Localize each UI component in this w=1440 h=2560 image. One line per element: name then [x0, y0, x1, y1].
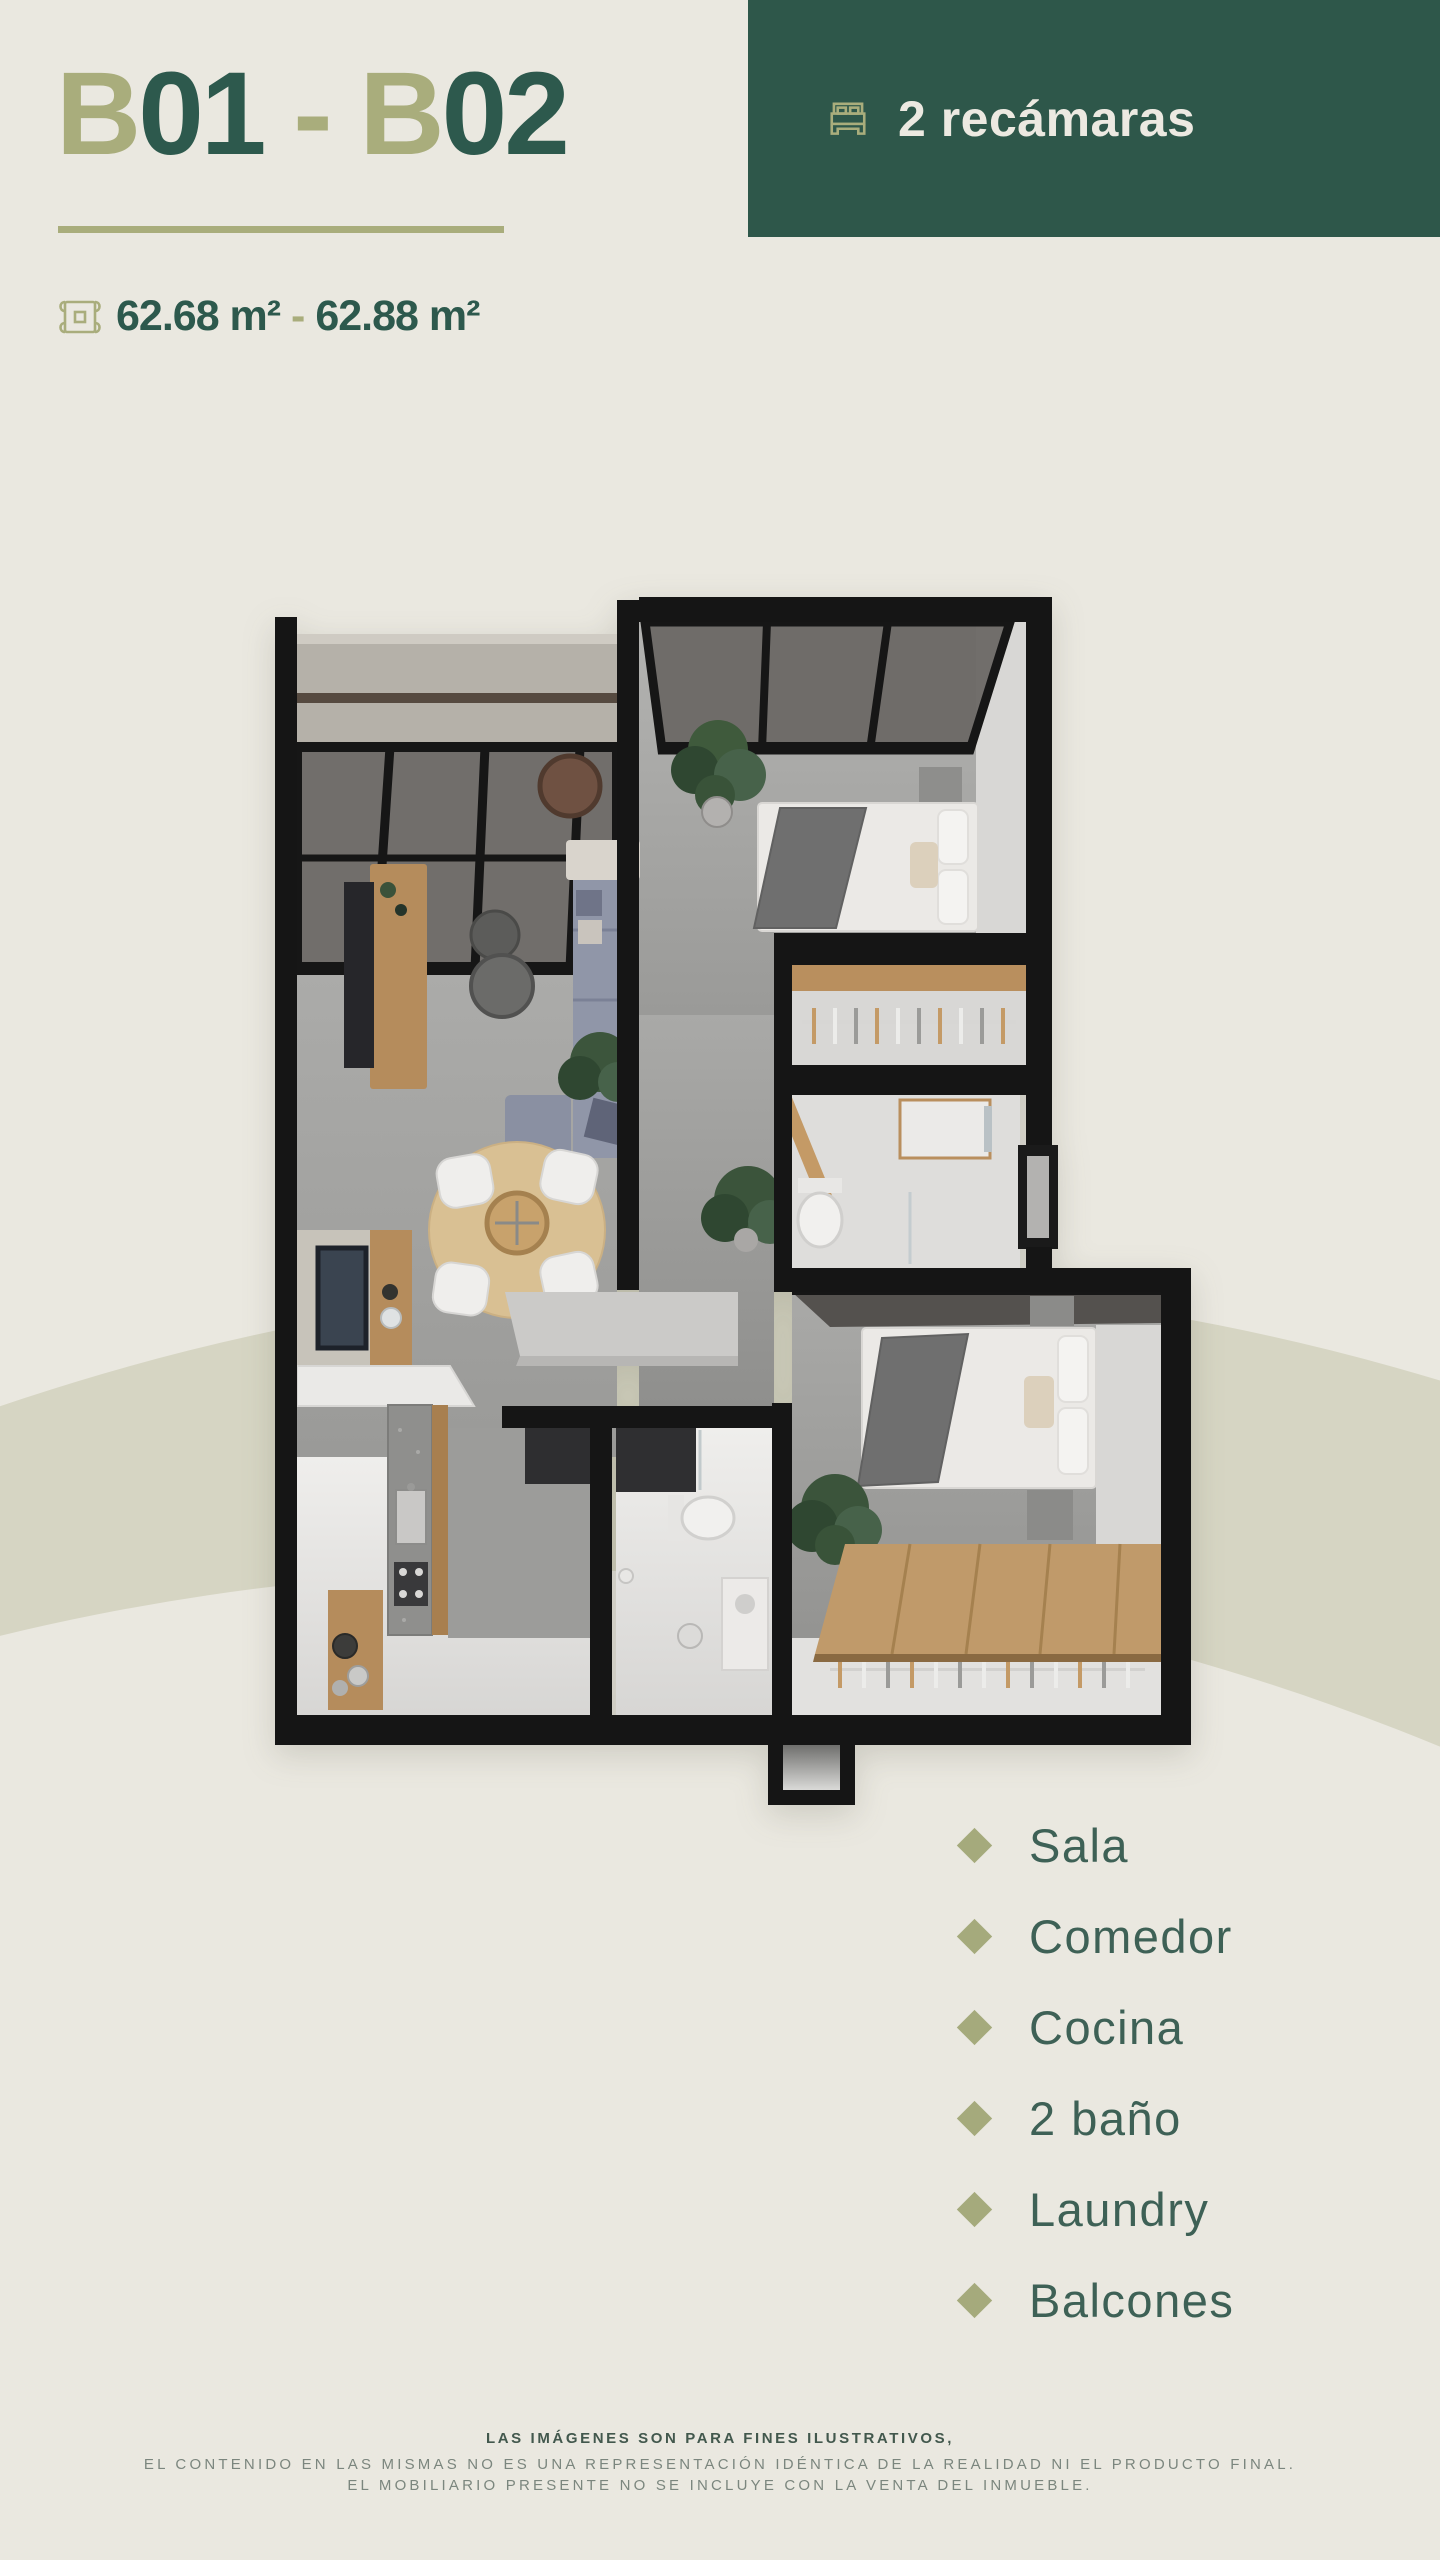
banner-label: 2 recámaras [898, 90, 1195, 148]
feature-label: Comedor [1029, 1909, 1233, 1964]
area-text: 62.68 m² - 62.88 m² [116, 292, 479, 341]
feature-label: Cocina [1029, 2000, 1184, 2055]
title-segment: 02 [442, 48, 567, 180]
diamond-bullet-icon [957, 2009, 992, 2044]
bed-icon [822, 93, 874, 145]
feature-label: Sala [1029, 1818, 1129, 1873]
page-title: B01 - B02 [56, 50, 567, 180]
disclaimer-line: EL MOBILIARIO PRESENTE NO SE INCLUYE CON… [0, 2475, 1440, 2496]
title-segment: 01 [138, 48, 263, 180]
floor-plan-icon [56, 293, 104, 341]
list-item: Laundry [962, 2176, 1234, 2242]
laundry-room [328, 1590, 383, 1710]
list-item: Comedor [962, 1903, 1234, 1969]
diamond-bullet-icon [957, 1918, 992, 1953]
diamond-bullet-icon [957, 2100, 992, 2135]
diamond-bullet-icon [957, 2282, 992, 2317]
area-separator: - [280, 292, 315, 340]
area-min: 62.68 m² [116, 292, 280, 340]
disclaimer-line: LAS IMÁGENES SON PARA FINES ILUSTRATIVOS… [0, 2430, 1440, 2447]
list-item: Sala [962, 1812, 1234, 1878]
disclaimer-line: EL CONTENIDO EN LAS MISMAS NO ES UNA REP… [0, 2454, 1440, 2475]
title-segment: - [263, 48, 359, 180]
list-item: Balcones [962, 2267, 1234, 2333]
feature-list: Sala Comedor Cocina 2 baño Laundry Balco… [962, 1812, 1234, 2358]
feature-label: Balcones [1029, 2273, 1234, 2328]
disclaimer: LAS IMÁGENES SON PARA FINES ILUSTRATIVOS… [0, 2430, 1440, 2496]
area-max: 62.88 m² [315, 292, 479, 340]
title-underline [58, 226, 504, 233]
list-item: Cocina [962, 1994, 1234, 2060]
flyer-page: B01 - B02 62.68 m² - 62.88 m² 2 recámara… [0, 0, 1440, 2560]
feature-label: Laundry [1029, 2182, 1209, 2237]
floor-plan-image [270, 590, 1200, 1805]
title-segment: B [56, 48, 138, 180]
diamond-bullet-icon [957, 2191, 992, 2226]
area-row: 62.68 m² - 62.88 m² [56, 292, 479, 341]
bedrooms-banner: 2 recámaras [748, 0, 1440, 237]
list-item: 2 baño [962, 2085, 1234, 2151]
title-segment: B [359, 48, 441, 180]
feature-label: 2 baño [1029, 2091, 1182, 2146]
diamond-bullet-icon [957, 1827, 992, 1862]
